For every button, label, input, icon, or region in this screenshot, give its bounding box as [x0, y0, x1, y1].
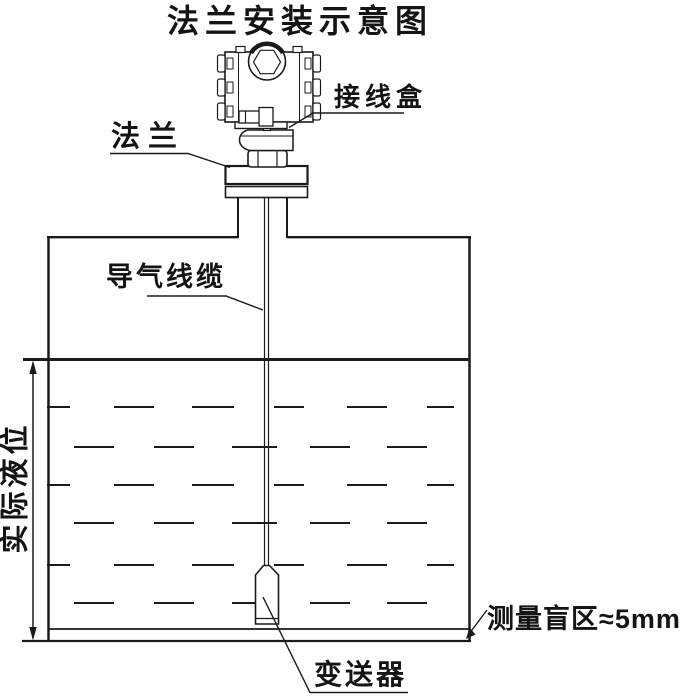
liquid-dashes	[47, 407, 454, 603]
cap-ear	[218, 103, 226, 120]
diagram-title: 法兰安装示意图	[158, 5, 442, 37]
process-coupling	[239, 130, 293, 151]
cap-ear	[313, 79, 321, 96]
cap-ear	[218, 55, 226, 72]
flange-pad	[226, 187, 308, 198]
cap-ear	[313, 55, 321, 72]
label-actual-level: 实际液位	[2, 434, 31, 554]
hex-nut	[248, 151, 287, 168]
air-cable-line	[265, 186, 269, 567]
housing-top-tab	[236, 47, 245, 53]
probe-body	[256, 566, 279, 625]
label-transmitter: 变送器	[314, 661, 407, 689]
cap-ear	[313, 103, 321, 120]
flange-assembly-drawing	[226, 151, 308, 239]
label-junction-box: 接线盒	[334, 84, 427, 110]
probe-weight-drawing	[256, 566, 279, 625]
leader-air-cable	[147, 296, 263, 310]
label-flange: 法兰	[111, 123, 185, 152]
housing-top-tab	[293, 47, 302, 53]
leader-flange	[110, 154, 230, 168]
tank-drawing	[22, 236, 471, 642]
flange-plate	[226, 166, 308, 184]
label-air-cable: 导气线缆	[106, 264, 226, 291]
diagram-screenshot: 法兰安装示意图 接线盒 法兰 导气线缆 实际液位 测量盲区≈5mm 变送器	[0, 0, 700, 700]
dimension-arrowhead-up-icon	[29, 361, 36, 375]
conduit-block	[259, 108, 273, 127]
transmitter-head-drawing	[218, 43, 321, 151]
dimension-arrowhead-down-icon	[29, 627, 36, 641]
label-blind-zone: 测量盲区≈5mm	[487, 606, 681, 633]
cap-ear	[218, 79, 226, 96]
